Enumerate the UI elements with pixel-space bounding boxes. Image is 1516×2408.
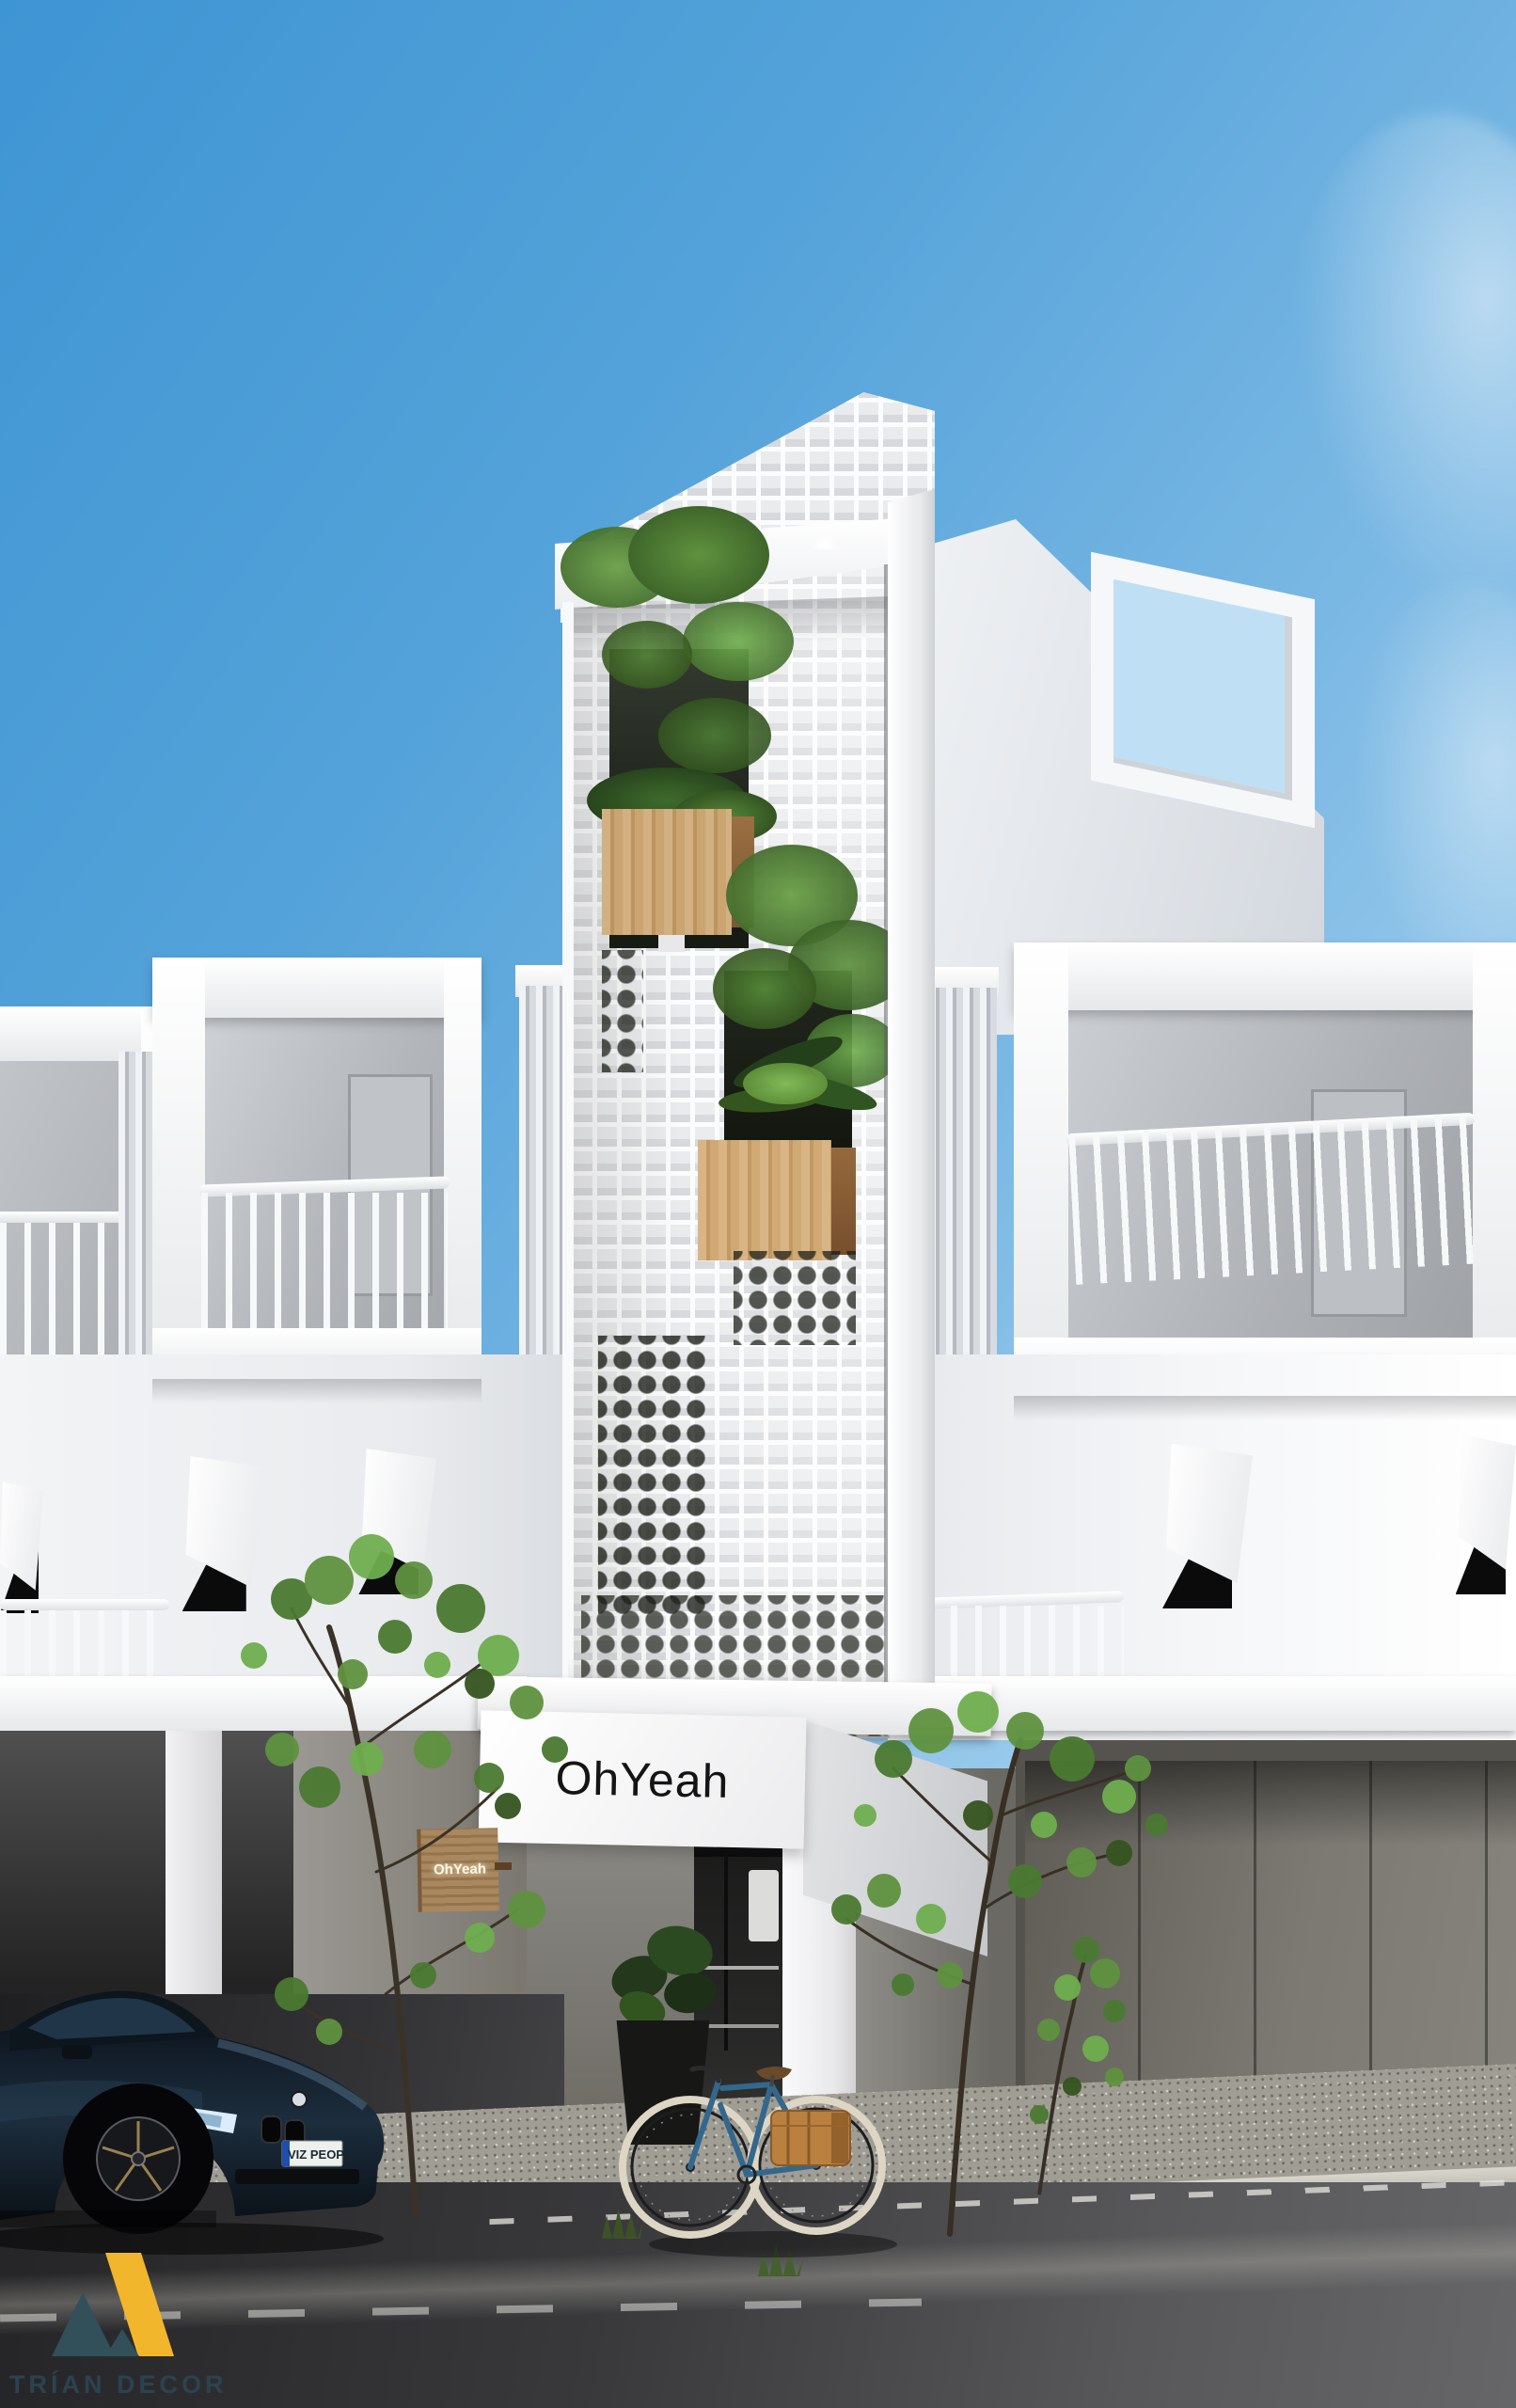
parked-car: VIZ PEOP	[0, 1945, 393, 2261]
mid-bright-grass	[743, 1063, 828, 1104]
car-wheel-hub	[132, 2152, 145, 2165]
right-balcony-box	[1014, 943, 1516, 1396]
car-license-plate: VIZ PEOP	[282, 2141, 344, 2166]
car-bmw-roundel	[292, 2092, 307, 2107]
lower-planter-side	[831, 1148, 856, 1255]
right-balcony-shadow	[1014, 1396, 1516, 1420]
car-mirror	[62, 2045, 92, 2059]
left-balcony-box	[152, 958, 482, 1383]
lower-planter-box	[698, 1140, 831, 1260]
balcony-frame-left	[152, 958, 205, 1383]
bicycle-pannier-bag	[771, 2111, 850, 2165]
balcony-balusters	[1068, 1113, 1480, 1284]
upper-tree-foliage	[683, 602, 794, 681]
awning-window-right-b	[1453, 1434, 1516, 1594]
window-awning-panel	[1166, 1444, 1253, 1589]
hanging-clothes	[749, 1870, 779, 1941]
upper-tree-foliage	[602, 621, 692, 689]
left-terrace-rail-top	[0, 1599, 169, 1610]
open-breezeblocks	[734, 1251, 856, 1345]
watermark-logo: TRÍAN DECOR	[9, 2250, 273, 2408]
car-front-apron	[235, 2169, 359, 2184]
upper-tree-foliage	[628, 506, 769, 604]
upper-planter-box	[602, 809, 732, 935]
architectural-render: OhYeah OhYeah	[0, 0, 1516, 2408]
car-plate-text: VIZ PEOP	[288, 2147, 344, 2162]
mid-tree-foliage	[713, 948, 816, 1029]
downlight-right	[813, 534, 837, 549]
roof-pergola-frame	[1091, 552, 1315, 829]
bicycle-handlebar	[692, 2068, 719, 2082]
parked-bicycle	[632, 2000, 914, 2273]
awning-window-left-edge	[0, 1481, 43, 1613]
left-balcony-shadow	[152, 1379, 482, 1403]
balcony-frame-left	[1014, 943, 1068, 1396]
balcony-frame-right	[1473, 943, 1516, 1396]
open-breezeblocks	[602, 950, 643, 1072]
upper-tree-foliage	[658, 698, 771, 773]
car-kidney-grille-left	[261, 2116, 281, 2143]
watermark-text: TRÍAN DECOR	[9, 2370, 273, 2408]
tree-foliage	[1030, 1937, 1126, 2124]
upper-planter-bracket	[658, 935, 685, 952]
tower-right-pilaster	[888, 489, 935, 1740]
car-sill-shadow	[0, 2210, 216, 2227]
garage-small-tree	[983, 1908, 1143, 2199]
logo-stroke-yellow	[9, 2250, 273, 2363]
window-awning-panel	[1458, 1434, 1516, 1576]
balcony-balusters	[201, 1193, 448, 1330]
bicycle-seatpost	[771, 2075, 773, 2086]
balcony-frame-top	[1014, 943, 1516, 1010]
balcony-frame-right	[444, 958, 482, 1383]
